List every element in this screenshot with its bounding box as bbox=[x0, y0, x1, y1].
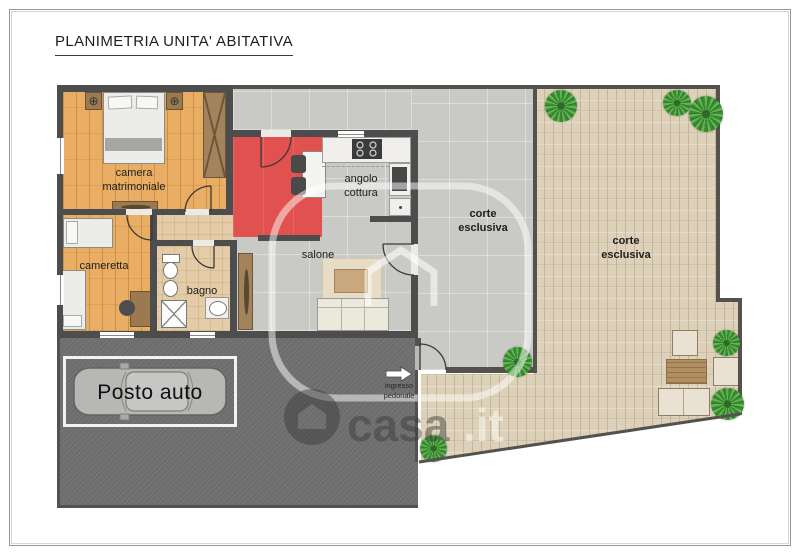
plant bbox=[503, 347, 532, 377]
coffee-table bbox=[334, 269, 368, 293]
window bbox=[56, 275, 64, 305]
living-door-gap bbox=[411, 244, 418, 275]
bedroom-door-gap bbox=[185, 209, 209, 215]
room-label-cameretta: cameretta bbox=[64, 260, 144, 274]
stove bbox=[352, 139, 382, 159]
parking-label: Posto auto bbox=[66, 381, 234, 405]
plant bbox=[663, 90, 691, 116]
window bbox=[100, 332, 134, 338]
wall bbox=[150, 215, 157, 331]
gate-gap bbox=[415, 346, 421, 370]
plant bbox=[711, 388, 744, 420]
floor-plan: PLANIMETRIA UNITA' ABITATIVA ⊕ bbox=[0, 0, 800, 555]
single-bed bbox=[63, 218, 113, 248]
plant bbox=[420, 435, 447, 462]
plant bbox=[545, 90, 577, 122]
boundary-wall bbox=[533, 89, 537, 373]
room-label-salone: salone bbox=[278, 249, 358, 263]
boundary-wall bbox=[233, 85, 720, 89]
upper-cabinet-line bbox=[322, 166, 389, 167]
dining-chair bbox=[291, 155, 306, 173]
wall bbox=[411, 130, 418, 338]
double-bed bbox=[103, 92, 165, 164]
room-label-bagno: bagno bbox=[172, 285, 232, 299]
entry-door-gap bbox=[261, 130, 291, 137]
wall bbox=[258, 235, 320, 241]
shower bbox=[161, 300, 187, 328]
window bbox=[338, 131, 364, 137]
sideboard bbox=[238, 253, 253, 330]
court-strip-floor bbox=[233, 89, 411, 130]
plant bbox=[689, 96, 723, 132]
toilet bbox=[162, 254, 181, 279]
outdoor-armchair bbox=[672, 330, 698, 356]
desk-chair bbox=[119, 300, 135, 316]
parking-space: Posto auto bbox=[63, 356, 237, 427]
label-corte-esclusiva-1: corte esclusiva bbox=[443, 208, 523, 236]
label-ingresso-pedonale: ingresso pedonale bbox=[373, 381, 425, 401]
outdoor-chair bbox=[713, 357, 740, 386]
label-corte-esclusiva-2: corte esclusiva bbox=[586, 235, 666, 263]
nightstand: ⊕ bbox=[85, 92, 102, 110]
bathroom-door-gap bbox=[193, 240, 214, 246]
wardrobe bbox=[203, 92, 226, 178]
nightstand: ⊕ bbox=[166, 92, 183, 110]
window bbox=[190, 332, 215, 338]
outdoor-sofa bbox=[658, 388, 710, 416]
outdoor-table bbox=[666, 359, 707, 384]
wall bbox=[370, 216, 418, 222]
fridge bbox=[389, 198, 411, 216]
washbasin bbox=[205, 297, 229, 319]
boundary-wall bbox=[57, 505, 418, 508]
dining-chair bbox=[291, 177, 306, 195]
wall bbox=[226, 85, 233, 215]
kids-room-door-gap bbox=[126, 209, 152, 215]
wall bbox=[57, 85, 233, 92]
page-title: PLANIMETRIA UNITA' ABITATIVA bbox=[55, 33, 293, 56]
plant bbox=[713, 330, 740, 356]
room-label-camera-matrimoniale: camera matrimoniale bbox=[84, 167, 184, 195]
sofa bbox=[317, 298, 389, 331]
window bbox=[56, 138, 64, 174]
boundary-wall bbox=[57, 338, 60, 508]
room-label-angolo-cottura: angolo cottura bbox=[321, 173, 401, 201]
